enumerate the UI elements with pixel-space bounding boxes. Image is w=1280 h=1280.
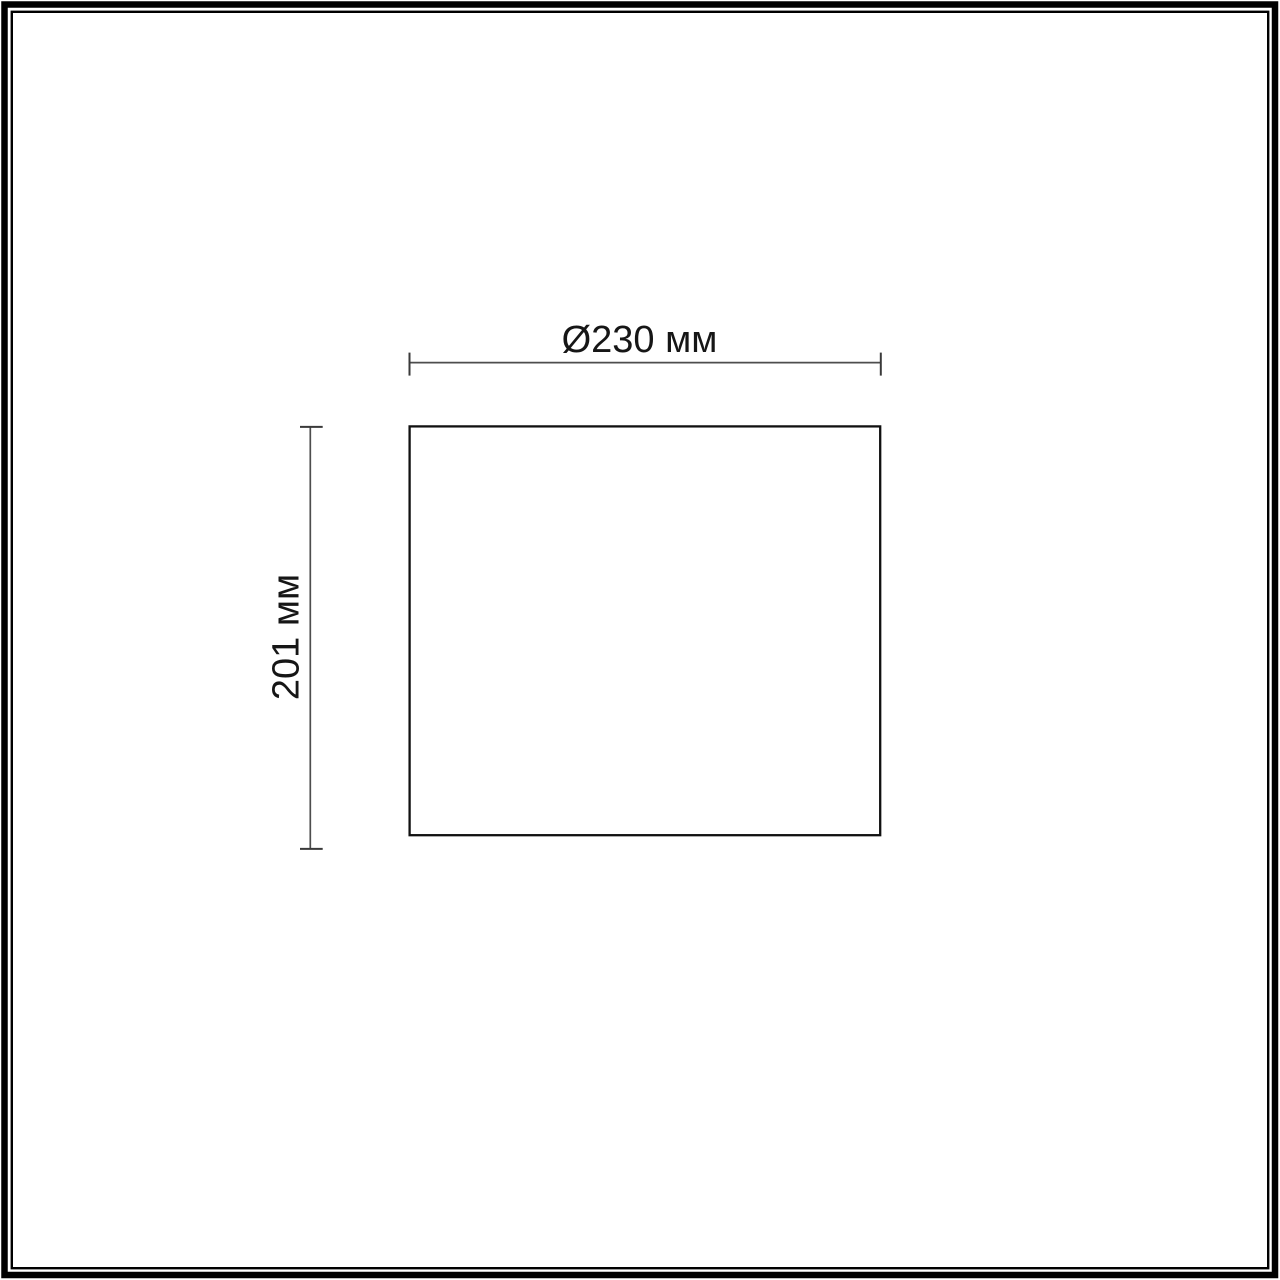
- svg-text:Ø230 мм: Ø230 мм: [562, 319, 718, 361]
- svg-text:201 мм: 201 мм: [266, 574, 308, 700]
